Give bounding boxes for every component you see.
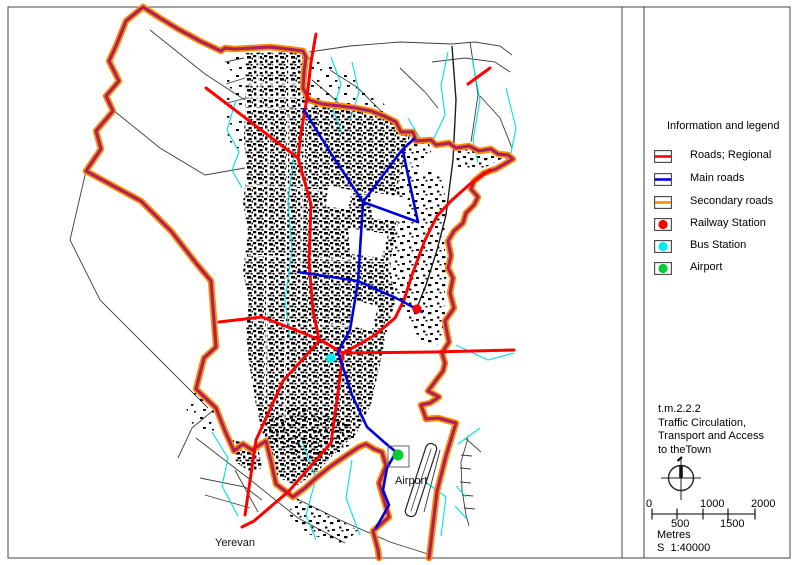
airport-label: Airport [395, 475, 427, 487]
legend-swatch-secondary-roads [654, 196, 672, 209]
map-sheet-page: Airport Yerevan Information and legend R… [0, 0, 799, 565]
scale-label-1500: 1500 [720, 518, 744, 530]
airport-marker [393, 450, 404, 461]
legend-label-main-roads: Main roads [690, 172, 744, 184]
scale-unit-label: Metres [657, 529, 691, 541]
scale-ratio-label: S 1:40000 [657, 542, 710, 554]
legend-label-railway-station: Railway Station [690, 217, 766, 229]
legend-label-bus-station: Bus Station [690, 239, 746, 251]
yerevan-label: Yerevan [215, 537, 255, 549]
railway-station-marker [412, 304, 421, 313]
title-block: t.m.2.2.2 Traffic Circulation, Transport… [658, 403, 764, 457]
legend-swatch-railway-station [654, 218, 672, 231]
legend-swatch-main-roads [654, 173, 672, 186]
legend-label-roads-regional: Roads; Regional [690, 149, 771, 161]
scale-bar-rule [648, 505, 763, 523]
legend-label-airport: Airport [690, 261, 722, 273]
title-block-line2: Transport and Access [658, 430, 764, 444]
bus-station-marker [326, 353, 336, 363]
north-arrow-compass [658, 454, 704, 502]
legend-title: Information and legend [667, 120, 780, 132]
legend-swatch-bus-station [654, 240, 672, 253]
legend-swatch-roads-regional [654, 150, 672, 163]
legend-swatch-airport [654, 262, 672, 275]
legend-label-secondary-roads: Secondary roads [690, 195, 773, 207]
title-block-line1: Traffic Circulation, [658, 417, 764, 431]
title-block-code: t.m.2.2.2 [658, 403, 764, 417]
